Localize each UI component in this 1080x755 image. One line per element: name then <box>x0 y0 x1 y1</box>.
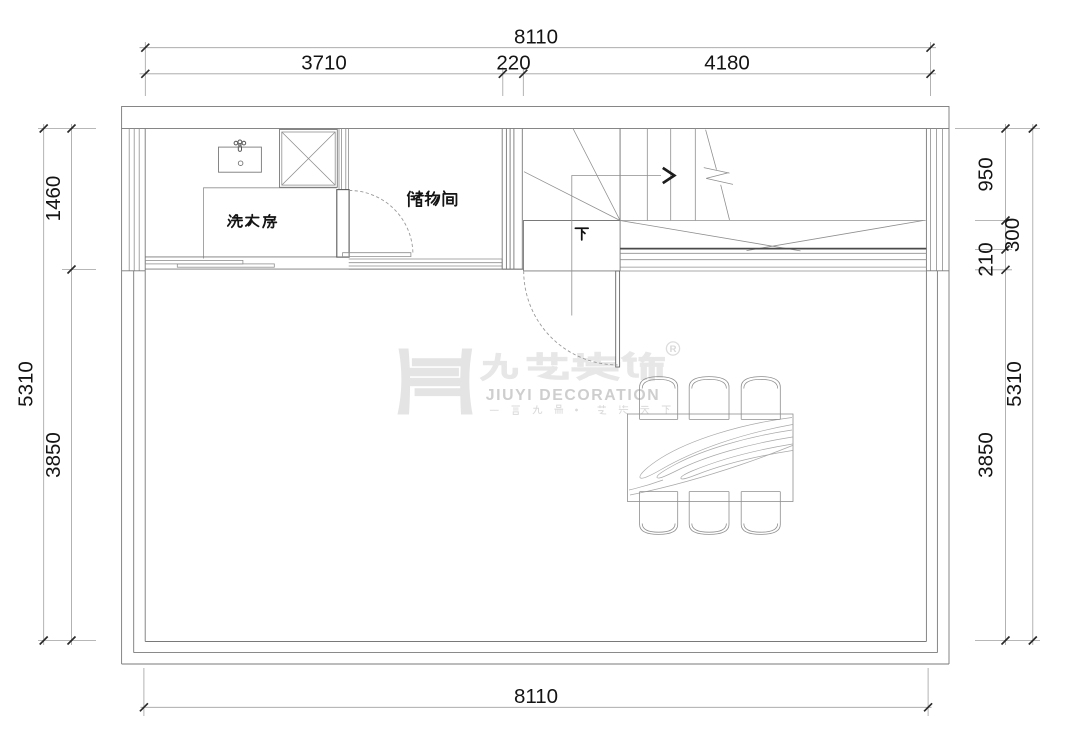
svg-text:950: 950 <box>975 157 998 191</box>
svg-text:5310: 5310 <box>1003 361 1026 407</box>
svg-text:300: 300 <box>1001 218 1024 252</box>
svg-text:210: 210 <box>975 242 998 276</box>
svg-text:JIUYI DECORATION: JIUYI DECORATION <box>486 387 661 404</box>
svg-text:220: 220 <box>496 52 530 75</box>
svg-text:3850: 3850 <box>42 432 65 478</box>
svg-text:8110: 8110 <box>514 685 558 708</box>
svg-text:R: R <box>670 344 677 355</box>
svg-text:4180: 4180 <box>704 52 750 75</box>
svg-text:3710: 3710 <box>301 52 347 75</box>
svg-text:3850: 3850 <box>975 432 998 478</box>
svg-text:5310: 5310 <box>15 361 38 407</box>
svg-text:8110: 8110 <box>514 26 558 49</box>
svg-text:1460: 1460 <box>42 176 65 222</box>
